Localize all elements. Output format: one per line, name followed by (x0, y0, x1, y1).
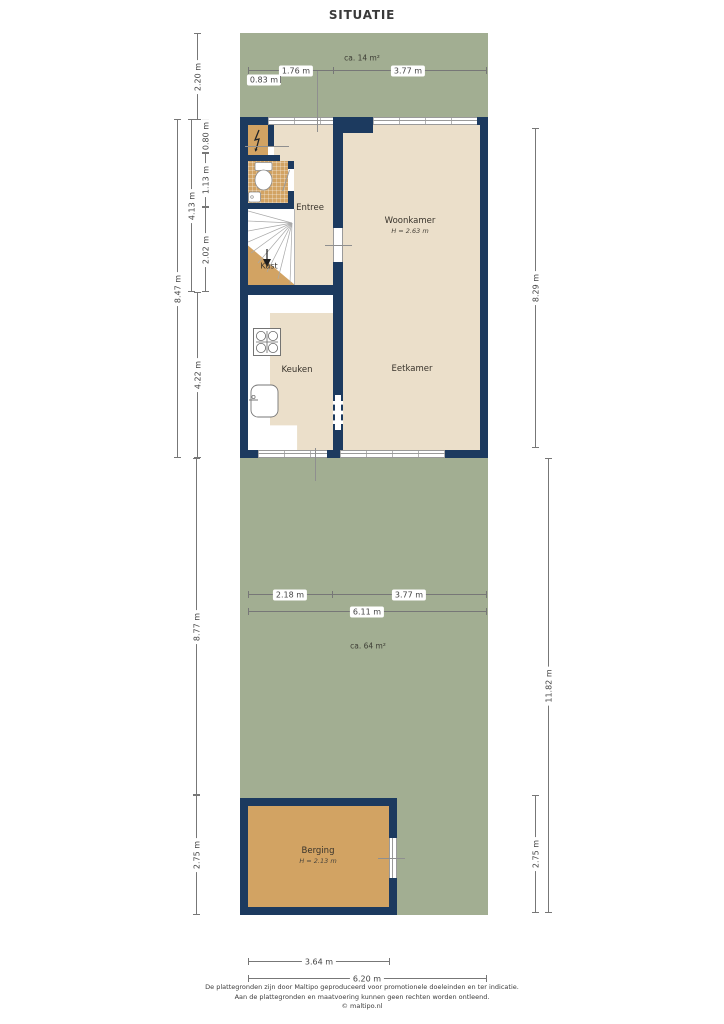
stove-icon (253, 328, 281, 356)
berging-height-label: H = 2.13 m (299, 857, 336, 865)
page-title: SITUATIE (0, 8, 724, 22)
dim-left-hall-total: 4.13 m (191, 119, 192, 292)
berging-label: Berging (302, 846, 335, 856)
dim-left-stairs: 2.02 m (205, 207, 206, 292)
toilet-sink-icon (249, 192, 261, 202)
garden-area-label: ca. 64 m² (350, 642, 386, 651)
toilet-icon (248, 161, 288, 203)
meterkast-door-opening (268, 147, 274, 155)
meterkast-closet (248, 125, 268, 155)
berging-door-tick (378, 858, 405, 859)
dim-bottom-total-line: 6.20 m (248, 978, 487, 979)
dim-top-woonkamer: 3.77 m (391, 65, 425, 76)
keuken-label: Keuken (281, 365, 312, 375)
footer-disclaimer: De plattegronden zijn door Maltipo gepro… (0, 983, 724, 1012)
dim-left-house-total: 8.47 m (177, 119, 178, 458)
keuken-top-wall (248, 285, 343, 295)
keuken-window (258, 450, 327, 458)
footer-line-3: © maltipo.nl (0, 1002, 724, 1012)
dim-garden-line: 2.18 m 3.77 m (248, 594, 487, 595)
dim-left-meterkast: 0.80 m (205, 119, 206, 153)
lightning-icon (248, 125, 268, 155)
dim-top-offset: 0.83 m (247, 74, 281, 85)
sink-icon (249, 381, 281, 421)
glass-door-tick (325, 245, 352, 246)
dim-left-front-yard: 2.20 m (197, 33, 198, 120)
entree-label: Entree (296, 203, 324, 213)
house-floorplan (240, 117, 488, 458)
dim-left-garden: 8.77 m (196, 458, 197, 795)
dim-top-entree: 1.76 m (279, 65, 313, 76)
woonkamer-label: Woonkamer (385, 216, 436, 226)
dim-right-berging: 2.75 m (535, 795, 536, 913)
dim-top-offset-line: 0.83 m (248, 79, 281, 80)
kast-label: Kast (260, 262, 277, 271)
meterkast-tick (245, 146, 289, 147)
dim-right-house: 8.29 m (535, 128, 536, 448)
footer-line-1: De plattegronden zijn door Maltipo gepro… (0, 983, 724, 993)
stairs-edge-line (294, 209, 295, 285)
front-boundary-marker (317, 70, 318, 132)
front-wall-stub (333, 117, 373, 133)
situation-floorplan-page: SITUATIE (0, 0, 724, 1024)
dim-left-toilet: 1.13 m (205, 153, 206, 207)
meterkast-wall (268, 125, 274, 147)
garden-boundary-marker (315, 448, 316, 481)
dim-garden-total: 6.11 m (350, 606, 384, 617)
dim-left-berging: 2.75 m (196, 795, 197, 915)
eetkamer-label: Eetkamer (392, 364, 433, 374)
front-yard-area-label: ca. 14 m² (344, 54, 380, 63)
dim-garden-right: 3.77 m (392, 589, 426, 600)
woonkamer-height-label: H = 2.63 m (391, 227, 428, 235)
dim-left-keuken: 4.22 m (197, 292, 198, 458)
toilet-room (248, 161, 288, 203)
front-door-window (268, 117, 333, 125)
dim-right-garden-total: 11.82 m (548, 458, 549, 913)
dim-top-line: 1.76 m 3.77 m (248, 70, 487, 71)
woonkamer-window (373, 117, 477, 125)
dim-garden-total-line: 6.11 m (248, 611, 487, 612)
stairs-icon (248, 209, 295, 285)
dim-garden-left: 2.18 m (273, 589, 307, 600)
dim-bottom-berging-line: 3.64 m (248, 961, 390, 962)
keuken-eetkamer-passage (333, 395, 343, 430)
eetkamer-garden-doors (340, 450, 445, 458)
dim-bottom-berging: 3.64 m (302, 956, 336, 967)
staircase (248, 209, 295, 285)
footer-line-2: Aan de plattegronden en maatvoering kunn… (0, 993, 724, 1003)
